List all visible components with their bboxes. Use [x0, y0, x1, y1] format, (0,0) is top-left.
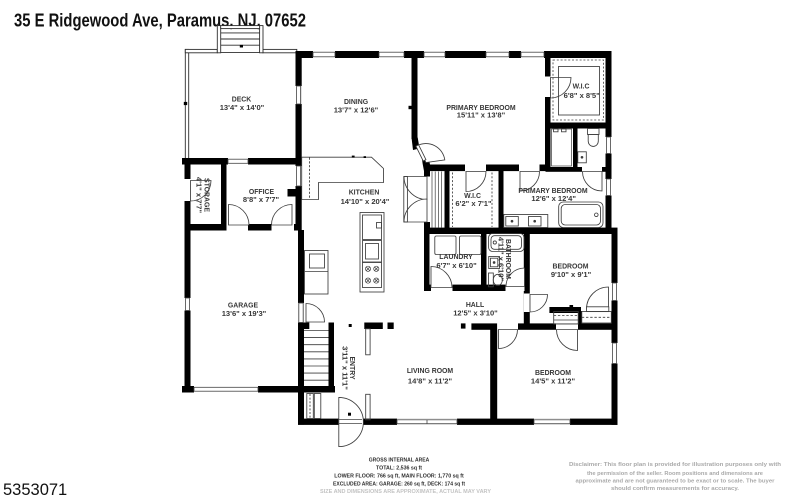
svg-text:6'8" x 8'5": 6'8" x 8'5" [564, 91, 601, 100]
svg-text:EXCLUDED AREA: GARAGE: 260 sq: EXCLUDED AREA: GARAGE: 260 sq ft, DECK: … [333, 481, 465, 487]
svg-text:14'10" x 20'4": 14'10" x 20'4" [341, 197, 390, 206]
svg-text:9'10" x 9'1": 9'10" x 9'1" [551, 270, 592, 279]
svg-text:5353071: 5353071 [3, 481, 67, 499]
svg-text:14'5" x 11'2": 14'5" x 11'2" [531, 377, 576, 386]
svg-text:LIVING ROOM: LIVING ROOM [407, 368, 454, 375]
svg-text:6'2" x 7'1": 6'2" x 7'1" [455, 199, 492, 208]
svg-text:W.I.C: W.I.C [573, 84, 590, 91]
svg-text:15'11" x 13'8": 15'11" x 13'8" [457, 111, 506, 120]
svg-text:LAUNDRY: LAUNDRY [439, 254, 473, 261]
svg-text:4'11" x 6'10": 4'11" x 6'10" [497, 237, 506, 282]
svg-text:13'7" x 12'6": 13'7" x 12'6" [334, 106, 379, 115]
svg-text:LOWER FLOOR: 766 sq ft, MAIN F: LOWER FLOOR: 766 sq ft, MAIN FLOOR: 1,77… [334, 473, 464, 479]
svg-text:GROSS INTERNAL AREA: GROSS INTERNAL AREA [369, 457, 430, 463]
svg-text:6'7" x 6'10": 6'7" x 6'10" [436, 261, 477, 270]
svg-text:Disclaimer: This floor plan is: Disclaimer: This floor plan is provided … [569, 462, 781, 468]
svg-text:8'8" x 7'7": 8'8" x 7'7" [243, 195, 280, 204]
svg-text:approximate and are not guaran: approximate and are not guaranteed to be… [576, 478, 776, 484]
svg-text:should confirm measurements fo: should confirm measurements for accuracy… [611, 486, 739, 492]
svg-text:SIZE AND DIMENSIONS ARE APPROX: SIZE AND DIMENSIONS ARE APPROXIMATE, ACT… [320, 489, 491, 495]
svg-text:12'5" x 3'10": 12'5" x 3'10" [453, 308, 498, 317]
svg-text:13'6" x 19'3": 13'6" x 19'3" [222, 309, 267, 318]
svg-text:the permission of the seller.: the permission of the seller. Room posit… [587, 471, 764, 477]
svg-text:14'8" x 11'2": 14'8" x 11'2" [408, 377, 453, 386]
svg-text:TOTAL: 2,536 sq ft: TOTAL: 2,536 sq ft [376, 466, 422, 472]
svg-text:KITCHEN: KITCHEN [349, 190, 380, 197]
svg-text:4'1" x 7'7": 4'1" x 7'7" [195, 177, 204, 214]
svg-text:13'4" x 14'0": 13'4" x 14'0" [220, 103, 265, 112]
svg-text:3'11" x 11'1": 3'11" x 11'1" [341, 346, 350, 390]
svg-text:12'6" x 12'4": 12'6" x 12'4" [531, 194, 576, 203]
